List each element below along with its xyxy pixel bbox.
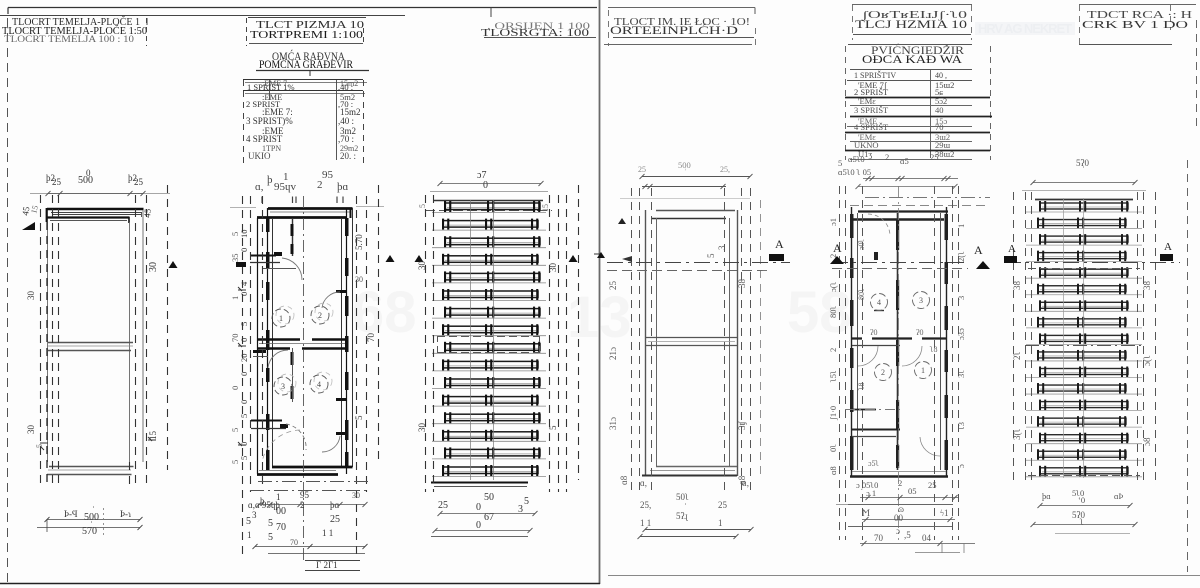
svg-text:30: 30 (26, 425, 36, 435)
svg-text:Ϸ-ɿ: Ϸ-ɿ (120, 509, 131, 519)
svg-text:ʾ: ʾ (1082, 165, 1085, 175)
svg-text:ʅ8: ʅ8 (857, 383, 866, 392)
svg-text:5: 5 (354, 415, 364, 420)
svg-text:ɔ3ɔ: ɔ3ɔ (956, 328, 966, 340)
svg-text:ʅ: ʅ (1079, 517, 1084, 527)
svg-text:1: 1 (279, 314, 283, 323)
svg-text:0: 0 (239, 400, 249, 404)
svg-text:25,: 25, (720, 165, 730, 174)
svg-text:1: 1 (956, 224, 966, 228)
svg-text:ɔ: ɔ (896, 526, 900, 536)
svg-text:4 SPRIST: 4 SPRIST (246, 134, 283, 144)
svg-text:ʔ0: ʔ0 (870, 328, 878, 337)
svg-text:5: 5 (246, 516, 251, 527)
svg-text:TLCJ HZMIA 10: TLCJ HZMIA 10 (855, 19, 967, 31)
svg-text:35: 35 (230, 254, 240, 263)
svg-text:5: 5 (239, 322, 249, 326)
svg-text:3: 3 (717, 245, 727, 250)
svg-text:TLOCRT TEMELJA 100 : 10: TLOCRT TEMELJA 100 : 10 (4, 35, 134, 45)
svg-text:10: 10 (239, 230, 249, 239)
svg-text:0: 0 (86, 168, 91, 178)
svg-text:1: 1 (921, 366, 925, 375)
svg-text:25: 25 (928, 480, 937, 490)
svg-text:Ϻ: Ϻ (862, 508, 870, 518)
svg-text:5: 5 (239, 456, 249, 460)
svg-text:4 SPRIŠT: 4 SPRIŠT (854, 122, 889, 132)
svg-text:2: 2 (318, 311, 322, 320)
svg-text:ɑ8: ɑ8 (619, 475, 629, 485)
svg-text:4: 4 (317, 380, 321, 389)
svg-text:2ʅ: 2ʅ (1012, 352, 1022, 361)
svg-text:0: 0 (476, 502, 481, 513)
svg-text:POMĆNA GRAĐEVIR: POMĆNA GRAĐEVIR (259, 57, 353, 71)
svg-text:,40 :: ,40 : (338, 82, 353, 92)
svg-text:5: 5 (35, 444, 44, 448)
svg-text:5: 5 (230, 460, 240, 464)
svg-text:5ʔɻ: 5ʔɻ (676, 511, 688, 521)
svg-text:ϸɑ: ϸɑ (337, 181, 349, 193)
svg-text:ɑ,: ɑ, (640, 478, 647, 488)
svg-text:2: 2 (885, 152, 889, 162)
svg-text:68: 68 (352, 280, 417, 345)
svg-text:30: 30 (355, 275, 363, 284)
svg-text:0: 0 (483, 180, 488, 191)
svg-text:30: 30 (417, 423, 427, 433)
svg-text:CRK BV 1 DO: CRK BV 1 DO (1082, 19, 1188, 31)
svg-text:0: 0 (476, 520, 481, 531)
svg-text:ɑ5: ɑ5 (900, 156, 909, 166)
svg-text:ʃ1·0: ʃ1·0 (828, 406, 838, 421)
svg-text:25: 25 (718, 500, 728, 510)
svg-text:0: 0 (230, 386, 240, 390)
svg-text:ʅ3: ʅ3 (956, 422, 966, 431)
svg-text:5: 5 (548, 425, 558, 430)
svg-text:ɔ0ʅ: ɔ0ʅ (857, 239, 866, 250)
svg-text:30: 30 (548, 263, 558, 273)
svg-text:50ʅ: 50ʅ (676, 492, 689, 502)
svg-text:ϸ: ϸ (267, 174, 273, 186)
svg-text:05: 05 (908, 486, 917, 496)
svg-text:1: 1 (718, 518, 723, 528)
svg-text:3: 3 (956, 296, 966, 300)
svg-text:ɔ(ʅ: ɔ(ʅ (1142, 355, 1152, 366)
svg-text:ʾ: ʾ (684, 168, 687, 177)
svg-text:OĐCA KAĐ WA: OĐCA KAĐ WA (862, 52, 962, 66)
svg-text:45: 45 (142, 208, 153, 218)
svg-text:1: 1 (230, 296, 240, 300)
svg-text:50: 50 (484, 492, 494, 503)
svg-text:5: 5 (418, 204, 427, 208)
svg-text:70: 70 (230, 334, 240, 343)
svg-text:04: 04 (922, 533, 932, 543)
svg-text:25: 25 (608, 281, 618, 291)
svg-text:95: 95 (300, 490, 310, 500)
svg-text:ORTEEINPLĆH·D: ORTEEINPLĆH·D (610, 23, 738, 37)
svg-text:70: 70 (290, 538, 298, 547)
svg-text:2: 2 (828, 254, 838, 258)
svg-text:40 ,: 40 , (935, 71, 947, 80)
svg-text:5: 5 (230, 428, 240, 432)
svg-text:3ʧ: 3ʧ (737, 421, 747, 431)
svg-text:25: 25 (638, 165, 646, 174)
svg-text:5: 5 (268, 518, 273, 529)
svg-text:31ɔ: 31ɔ (608, 417, 618, 430)
svg-text:70: 70 (935, 122, 944, 132)
svg-text:25,: 25, (640, 500, 651, 510)
svg-text:ɑ5ʅ0 ʅ 05: ɑ5ʅ0 ʅ 05 (838, 167, 871, 177)
svg-text:25: 25 (330, 514, 340, 525)
svg-text:38: 38 (1142, 281, 1152, 291)
svg-text:2: 2 (300, 500, 305, 510)
svg-text:1 SPRIST 1%: 1 SPRIST 1% (247, 82, 295, 92)
svg-text:1 SPRIŠT'IV: 1 SPRIŠT'IV (854, 71, 896, 80)
svg-text:30: 30 (148, 262, 159, 272)
svg-text:4: 4 (877, 298, 881, 307)
svg-text:5: 5 (239, 414, 249, 418)
svg-text:ʾ: ʾ (90, 520, 93, 530)
svg-text:0: 0 (239, 372, 249, 376)
svg-text:ɔ: ɔ (956, 464, 966, 468)
svg-text:80ʅ: 80ʅ (857, 289, 866, 301)
svg-text:20: 20 (239, 354, 249, 363)
svg-text:ʔ0: ʔ0 (916, 328, 924, 337)
svg-text:0: 0 (239, 248, 249, 252)
svg-text:ɔ 1: ɔ 1 (866, 488, 876, 498)
svg-text:70: 70 (366, 333, 376, 343)
svg-text:2: 2 (898, 478, 902, 488)
svg-text:,5: ,5 (904, 530, 911, 540)
svg-text:3: 3 (252, 510, 257, 520)
svg-text:,40 :: ,40 : (338, 116, 354, 126)
svg-text:3: 3 (281, 382, 285, 391)
svg-text:A: A (833, 241, 842, 255)
svg-text:5: 5 (268, 532, 273, 543)
svg-text:2: 2 (881, 368, 885, 377)
svg-text:Ϸ-Ϥ: Ϸ-Ϥ (64, 509, 78, 519)
svg-text:2(ʅ: 2(ʅ (956, 251, 966, 262)
svg-text:ϟ1: ϟ1 (940, 508, 949, 518)
svg-text:A: A (1008, 243, 1016, 255)
svg-text:ʅ5ʅ: ʅ5ʅ (828, 370, 838, 383)
svg-text:A: A (775, 237, 784, 251)
svg-text:UKIO: UKIO (248, 151, 271, 161)
svg-text:58: 58 (787, 280, 852, 345)
svg-text:80ʅ: 80ʅ (828, 306, 838, 318)
svg-text:00: 00 (276, 506, 286, 517)
svg-text:ɑ5ʅ0: ɑ5ʅ0 (848, 154, 865, 164)
svg-text:5.70: 5.70 (354, 234, 364, 250)
svg-text:70: 70 (276, 522, 286, 533)
svg-text:2: 2 (828, 348, 838, 352)
svg-text:95: 95 (322, 169, 334, 181)
svg-text:20. :: 20. : (340, 151, 356, 161)
svg-text:1 1: 1 1 (322, 528, 333, 538)
svg-text:ʾ: ʾ (92, 505, 95, 515)
svg-text:25: 25 (134, 177, 144, 187)
svg-text:3: 3 (919, 296, 923, 305)
svg-text:30: 30 (417, 261, 427, 271)
svg-text:ɔ5ʅ: ɔ5ʅ (868, 459, 879, 468)
svg-text:A: A (974, 243, 983, 257)
svg-text:25: 25 (52, 177, 62, 187)
svg-text:ɔ1: ɔ1 (828, 218, 838, 226)
svg-text:3 SPRIŠT: 3 SPRIŠT (854, 105, 889, 115)
svg-text:ɔ8: ɔ8 (1142, 437, 1152, 446)
svg-text:TORTPREMI 1:100: TORTPREMI 1:100 (250, 29, 364, 41)
svg-text:ʅ8: ʅ8 (929, 345, 938, 354)
svg-text:ɔ(ʅ: ɔ(ʅ (828, 282, 838, 292)
svg-text:HRV AG NEKRET: HRV AG NEKRET (978, 21, 1072, 36)
svg-text:ϸɑ: ϸɑ (330, 500, 340, 510)
svg-text:3(ʅ: 3(ʅ (1012, 429, 1022, 440)
svg-text:3 SPRIST)%: 3 SPRIST)% (246, 116, 293, 126)
svg-text:5: 5 (230, 232, 240, 236)
svg-text:,70 :: ,70 : (338, 134, 354, 144)
svg-text:A: A (1164, 241, 1172, 253)
svg-text:70: 70 (874, 533, 884, 543)
svg-text:ɑ8: ɑ8 (828, 466, 838, 475)
svg-text:0: 0 (239, 292, 249, 296)
svg-text:ɑϷ: ɑϷ (1114, 491, 1123, 501)
svg-text:5: 5 (524, 496, 529, 507)
svg-text:30: 30 (352, 491, 360, 500)
svg-text:1: 1 (247, 530, 252, 540)
svg-text:38: 38 (737, 279, 747, 289)
svg-text:15: 15 (541, 204, 550, 212)
svg-text:00: 00 (894, 513, 904, 523)
svg-text:30: 30 (26, 291, 36, 301)
svg-text:ɑ,: ɑ, (742, 478, 749, 488)
svg-text:5: 5 (706, 253, 716, 258)
svg-text:0ʅ: 0ʅ (828, 444, 838, 452)
svg-text:1: 1 (283, 171, 289, 183)
svg-text:38: 38 (1012, 281, 1022, 291)
svg-text:ʽ0: ʽ0 (1078, 495, 1085, 505)
svg-text:ϸɑ: ϸɑ (1042, 491, 1051, 501)
svg-text:ɑ,: ɑ, (255, 181, 264, 193)
svg-text:25: 25 (930, 152, 939, 162)
svg-text:3ʅ: 3ʅ (956, 370, 966, 378)
svg-text:0: 0 (239, 338, 249, 342)
svg-text:Γ 2Γ1: Γ 2Γ1 (316, 560, 338, 570)
svg-text:25: 25 (438, 500, 448, 511)
svg-text:21ɔ: 21ɔ (608, 347, 618, 360)
svg-text:1 1: 1 1 (640, 518, 651, 528)
svg-text:40: 40 (935, 105, 944, 115)
